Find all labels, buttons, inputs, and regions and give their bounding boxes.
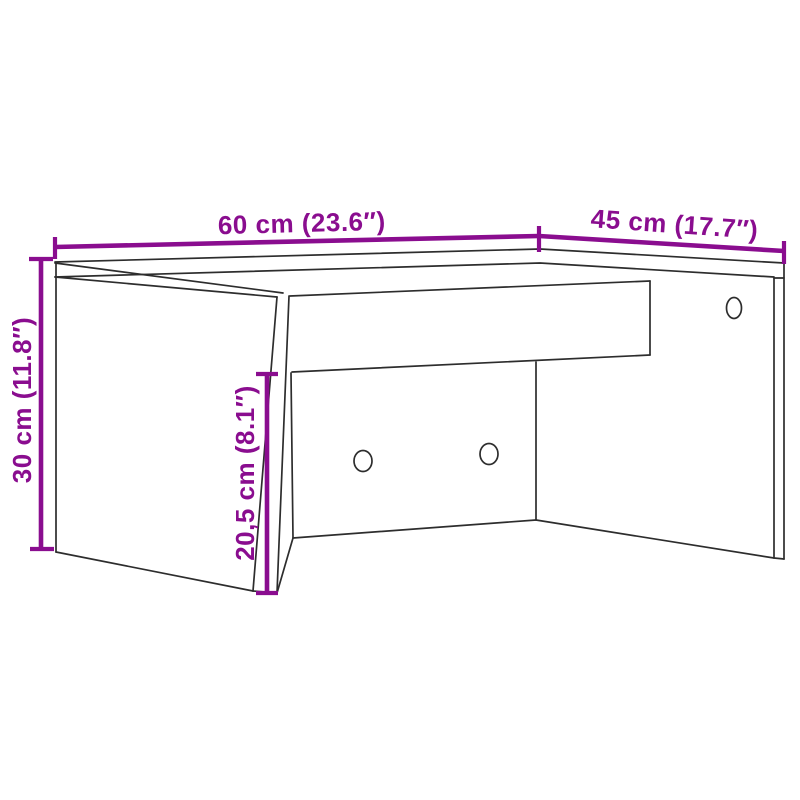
dimension-labels: 60 cm (23.6″) 45 cm (17.7″) 30 cm (11.8″…: [7, 203, 759, 561]
product-dimension-diagram: 60 cm (23.6″) 45 cm (17.7″) 30 cm (11.8″…: [0, 0, 800, 800]
top-panel-back-edge: [55, 249, 784, 263]
apron-bottom-edge: [292, 355, 650, 372]
top-panel-left-edge: [55, 263, 283, 293]
right-panel-floor-edge: [536, 520, 774, 558]
cable-hole-left: [354, 451, 372, 472]
cable-hole-middle: [480, 444, 498, 465]
apron-top-edge: [290, 281, 650, 296]
back-panel-left-edge: [291, 373, 293, 538]
left-panel-front-inner-edge: [277, 296, 289, 593]
apron-panel: [290, 281, 650, 372]
furniture-drawing: [55, 249, 784, 593]
top-panel-bottom-edge: [55, 263, 774, 277]
inner-height-dimension-label: 20,5 cm (8.1″): [230, 385, 260, 561]
right-panel-bottom-edge: [774, 558, 784, 559]
left-panel-bottom-edge: [56, 552, 253, 591]
width-dimension-label: 60 cm (23.6″): [217, 206, 386, 240]
dimension-annotations: [29, 226, 784, 593]
height-dimension-label: 30 cm (11.8″): [7, 317, 37, 483]
back-panel: [291, 362, 536, 538]
top-panel-right-end: [774, 263, 784, 278]
right-side-panel: [536, 278, 784, 559]
dimension-diagram-canvas: 60 cm (23.6″) 45 cm (17.7″) 30 cm (11.8″…: [0, 0, 800, 800]
cable-hole-right: [727, 298, 742, 319]
back-panel-bottom-edge: [293, 520, 536, 538]
